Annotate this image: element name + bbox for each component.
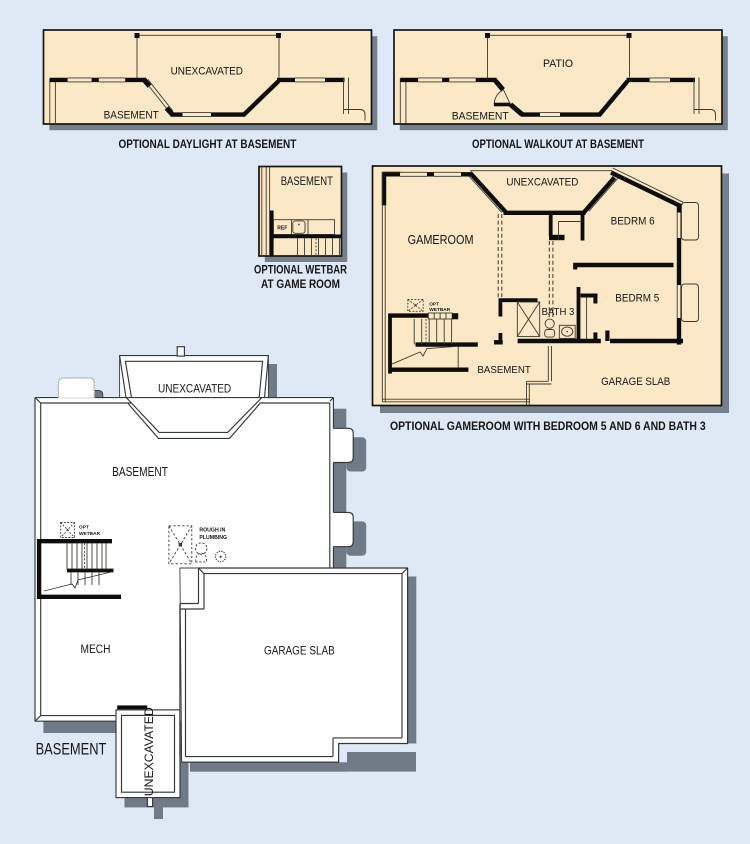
svg-text:OPTIONAL WALKOUT AT BASEMENT: OPTIONAL WALKOUT AT BASEMENT bbox=[472, 139, 644, 151]
svg-text:BASEMENT: BASEMENT bbox=[281, 176, 333, 188]
svg-text:PLUMBING: PLUMBING bbox=[199, 535, 227, 541]
svg-text:BASEMENT: BASEMENT bbox=[104, 110, 159, 122]
svg-text:AT GAME ROOM: AT GAME ROOM bbox=[261, 279, 340, 291]
svg-text:ROUGH IN: ROUGH IN bbox=[199, 528, 225, 534]
svg-text:GARAGE SLAB: GARAGE SLAB bbox=[264, 643, 335, 657]
svg-text:BASEMENT: BASEMENT bbox=[36, 741, 107, 759]
svg-text:UNEXCAVATED: UNEXCAVATED bbox=[171, 66, 243, 78]
svg-text:UNEXCAVATED: UNEXCAVATED bbox=[144, 707, 156, 796]
svg-text:WETBAR: WETBAR bbox=[79, 531, 101, 537]
svg-text:OPTIONAL WETBAR: OPTIONAL WETBAR bbox=[254, 264, 348, 276]
svg-text:BEDRM 5: BEDRM 5 bbox=[615, 293, 659, 305]
svg-text:BASEMENT: BASEMENT bbox=[112, 465, 168, 479]
svg-text:MECH: MECH bbox=[81, 644, 111, 656]
svg-text:BEDRM 6: BEDRM 6 bbox=[611, 216, 655, 228]
svg-text:BATH 3: BATH 3 bbox=[542, 306, 575, 318]
svg-text:OPT: OPT bbox=[429, 301, 439, 307]
svg-text:GARAGE SLAB: GARAGE SLAB bbox=[601, 376, 670, 388]
svg-text:OPT: OPT bbox=[79, 525, 89, 531]
svg-text:BASEMENT: BASEMENT bbox=[477, 364, 531, 376]
svg-text:GAMEROOM: GAMEROOM bbox=[408, 233, 474, 247]
svg-text:BASEMENT: BASEMENT bbox=[452, 111, 509, 123]
svg-text:REF: REF bbox=[277, 226, 287, 232]
svg-text:OPTIONAL DAYLIGHT AT BASEMENT: OPTIONAL DAYLIGHT AT BASEMENT bbox=[118, 139, 296, 151]
svg-text:WETBAR: WETBAR bbox=[429, 307, 451, 313]
svg-text:OPTIONAL GAMEROOM WITH BEDROOM: OPTIONAL GAMEROOM WITH BEDROOM 5 AND 6 A… bbox=[390, 421, 706, 433]
svg-text:PATIO: PATIO bbox=[543, 58, 573, 70]
svg-text:UNEXCAVATED: UNEXCAVATED bbox=[158, 384, 231, 396]
svg-text:UNEXCAVATED: UNEXCAVATED bbox=[506, 177, 578, 189]
